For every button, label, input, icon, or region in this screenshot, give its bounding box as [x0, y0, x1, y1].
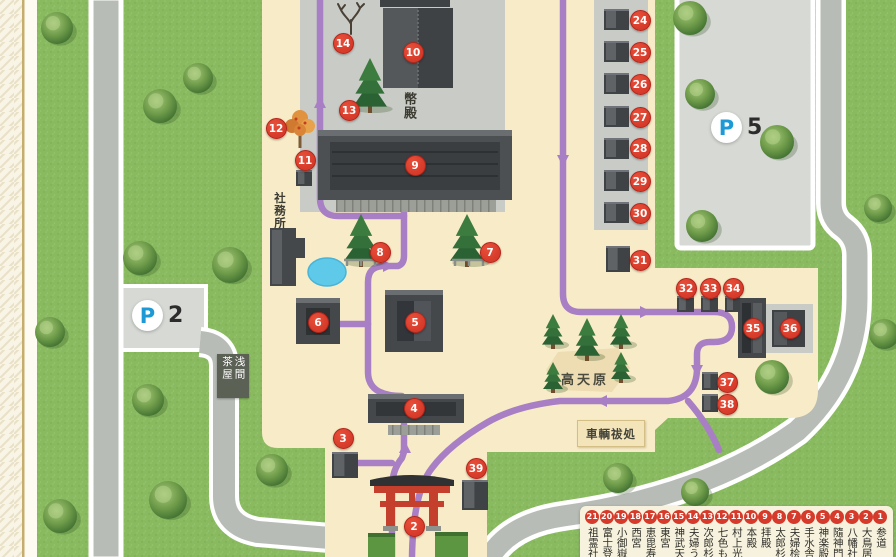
small-building [604, 73, 629, 94]
marker-33: 33 [700, 278, 721, 299]
small-building [702, 394, 718, 412]
map-border-left [0, 0, 37, 557]
legend-label: 神楽殿 [817, 527, 828, 557]
legend-label: 西宮 [630, 527, 641, 548]
legend-item-3: 3八幡社 [844, 510, 858, 557]
marker-31: 31 [630, 250, 651, 271]
legend-item-16: 16東宮 [657, 510, 671, 557]
marker-13: 13 [339, 100, 360, 121]
legend-label: 隨神門 [831, 527, 842, 557]
marker-36: 36 [780, 318, 801, 339]
legend-item-4: 4隨神門 [830, 510, 844, 557]
pond [308, 258, 346, 286]
legend-item-17: 17恵毘寿 [643, 510, 657, 557]
legend-item-18: 18西宮 [628, 510, 642, 557]
marker-5: 5 [405, 312, 426, 333]
marker-35: 35 [743, 318, 764, 339]
legend-number: 21 [585, 510, 599, 524]
marker-12: 12 [266, 118, 287, 139]
legend-number: 11 [729, 510, 743, 524]
marker-27: 27 [630, 107, 651, 128]
small-building [462, 480, 488, 510]
marker-38: 38 [717, 394, 738, 415]
legend-item-2: 2大鳥居 [859, 510, 873, 557]
legend-number: 9 [758, 510, 772, 524]
small-building [702, 372, 718, 390]
marker-3: 3 [333, 428, 354, 449]
legend-item-20: 20富士登 [599, 510, 613, 557]
legend-item-9: 9拝殿 [758, 510, 772, 557]
legend-number: 3 [845, 510, 859, 524]
marker-34: 34 [723, 278, 744, 299]
legend-item-1: 1参道 [873, 510, 887, 557]
sengen-chaya-col-right: 浅間 [234, 356, 245, 396]
legend-label: 本殿 [745, 527, 756, 548]
marker-32: 32 [676, 278, 697, 299]
small-building [604, 170, 629, 191]
legend-label: 神武天 [673, 527, 684, 557]
marker-4: 4 [404, 398, 425, 419]
legend-label: 太郎杉 [774, 527, 785, 557]
legend-number: 1 [873, 510, 887, 524]
legend-label: 富士登 [601, 527, 612, 557]
marker-26: 26 [630, 74, 651, 95]
small-building [332, 452, 358, 478]
legend-number: 20 [600, 510, 614, 524]
legend-item-12: 12七色も [715, 510, 729, 557]
marker-2: 2 [404, 516, 425, 537]
legend-label: 小御嶽 [615, 527, 626, 557]
label-takamagahara: 高天原 [561, 369, 609, 388]
legend-number: 19 [614, 510, 628, 524]
legend-number: 2 [859, 510, 873, 524]
small-building [604, 9, 629, 30]
small-building [604, 138, 629, 159]
road-west [91, 0, 121, 557]
label-shamusho: 社務所 [272, 192, 288, 230]
legend-columns: 21祖霊社20富士登19小御嶽18西宮17恵毘寿16東宮15神武天14夫婦う13… [585, 510, 888, 557]
legend-label: 七色も [716, 527, 727, 557]
marker-9: 9 [405, 155, 426, 176]
legend-item-13: 13次郎杉 [700, 510, 714, 557]
marker-25: 25 [630, 42, 651, 63]
sengen-chaya-col-left: 茶屋 [222, 356, 233, 396]
legend-label: 祖霊社 [587, 527, 598, 557]
legend-number: 13 [700, 510, 714, 524]
legend-label: 手水舎 [803, 527, 814, 557]
marker-14: 14 [333, 33, 354, 54]
small-building [604, 41, 629, 62]
legend-item-11: 11村上光清 [729, 510, 743, 557]
legend-number: 12 [715, 510, 729, 524]
legend-number: 8 [772, 510, 786, 524]
legend-number: 16 [657, 510, 671, 524]
legend-item-21: 21祖霊社 [585, 510, 599, 557]
map-graphics [0, 0, 896, 557]
legend-number: 17 [643, 510, 657, 524]
legend-panel: 21祖霊社20富士登19小御嶽18西宮17恵毘寿16東宮15神武天14夫婦う13… [580, 506, 893, 557]
legend-item-19: 19小御嶽 [614, 510, 628, 557]
small-building [604, 106, 629, 127]
marker-28: 28 [630, 138, 651, 159]
small-building [604, 202, 629, 223]
legend-item-8: 8太郎杉 [772, 510, 786, 557]
legend-label: 参道 [875, 527, 886, 548]
legend-label: 大鳥居 [860, 527, 871, 557]
legend-label: 恵毘寿 [644, 527, 655, 557]
legend-label: 拝殿 [759, 527, 770, 548]
legend-item-5: 5神楽殿 [816, 510, 830, 557]
label-sharyo-haraisho: 車輌祓処 [577, 420, 645, 447]
parking-p-icon: P [711, 112, 742, 143]
legend-number: 6 [801, 510, 815, 524]
marker-39: 39 [466, 458, 487, 479]
legend-label: 次郎杉 [702, 527, 713, 557]
legend-number: 4 [830, 510, 844, 524]
legend-item-7: 7夫婦桧 [787, 510, 801, 557]
legend-item-6: 6手水舎 [801, 510, 815, 557]
small-building [296, 170, 312, 186]
marker-29: 29 [630, 171, 651, 192]
parking-number: 5 [747, 115, 762, 140]
legend-item-15: 15神武天 [671, 510, 685, 557]
marker-37: 37 [717, 372, 738, 393]
marker-7: 7 [480, 242, 501, 263]
label-heiden: 幣殿 [399, 92, 418, 120]
legend-number: 7 [787, 510, 801, 524]
marker-24: 24 [630, 10, 651, 31]
building-top [380, 0, 450, 7]
legend-label: 夫婦桧 [788, 527, 799, 557]
parking-number: 2 [168, 303, 183, 328]
legend-number: 15 [672, 510, 686, 524]
legend-item-10: 10本殿 [743, 510, 757, 557]
legend-label: 夫婦う [687, 527, 698, 557]
marker-6: 6 [308, 312, 329, 333]
legend-number: 5 [816, 510, 830, 524]
legend-number: 14 [686, 510, 700, 524]
legend-number: 18 [628, 510, 642, 524]
legend-number: 10 [744, 510, 758, 524]
shrine-grounds-map: 幣殿 社務所 浅間 茶屋 高天原 車輌祓処 P 2 P 5 2345678910… [0, 0, 896, 557]
legend-label: 東宮 [659, 527, 670, 548]
parking-badge-p2: P 2 [132, 300, 183, 331]
legend-label: 村上光清 [731, 527, 742, 557]
marker-11: 11 [295, 150, 316, 171]
parking-badge-p5: P 5 [711, 112, 762, 143]
marker-30: 30 [630, 203, 651, 224]
parking-p-icon: P [132, 300, 163, 331]
marker-8: 8 [370, 242, 391, 263]
legend-item-14: 14夫婦う [686, 510, 700, 557]
label-sengen-chaya: 浅間 茶屋 [217, 354, 249, 398]
small-building [606, 246, 630, 272]
legend-label: 八幡社 [846, 527, 857, 557]
marker-10: 10 [403, 42, 424, 63]
